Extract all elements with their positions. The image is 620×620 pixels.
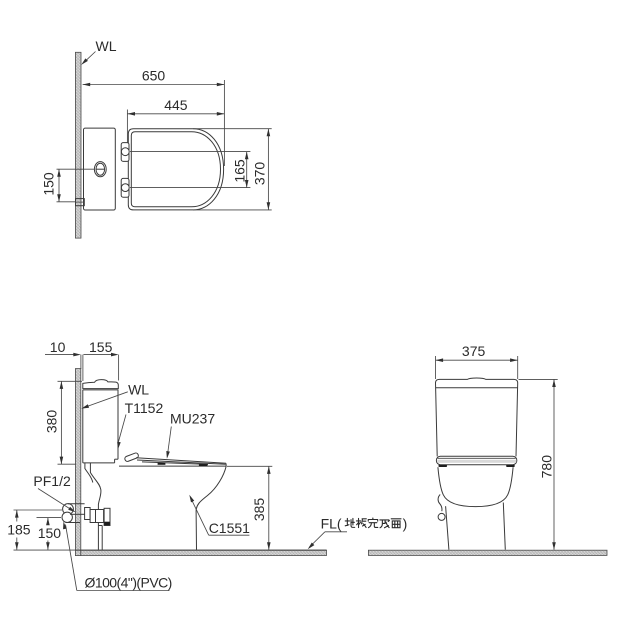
svg-text:380: 380 <box>43 410 59 434</box>
svg-text:WL: WL <box>96 38 117 54</box>
svg-text:165: 165 <box>231 159 247 183</box>
svg-text:10: 10 <box>50 339 66 355</box>
svg-text:385: 385 <box>251 498 267 522</box>
svg-text:650: 650 <box>142 67 166 83</box>
svg-text:445: 445 <box>164 97 188 113</box>
svg-text:Ø100(4")(PVC): Ø100(4")(PVC) <box>85 574 172 590</box>
svg-text:): ) <box>403 516 408 532</box>
svg-text:370: 370 <box>252 162 268 186</box>
svg-text:MU237: MU237 <box>170 411 215 427</box>
svg-text:PF1/2: PF1/2 <box>33 473 71 489</box>
svg-text:T1152: T1152 <box>125 400 164 416</box>
svg-text:150: 150 <box>38 525 62 541</box>
svg-text:155: 155 <box>89 339 113 355</box>
svg-text:FL(: FL( <box>321 516 342 532</box>
svg-text:WL: WL <box>128 381 149 397</box>
svg-text:185: 185 <box>7 522 31 538</box>
svg-text:375: 375 <box>462 343 486 359</box>
svg-text:150: 150 <box>41 172 57 196</box>
svg-text:780: 780 <box>539 455 555 479</box>
svg-text:C1551: C1551 <box>209 520 250 536</box>
